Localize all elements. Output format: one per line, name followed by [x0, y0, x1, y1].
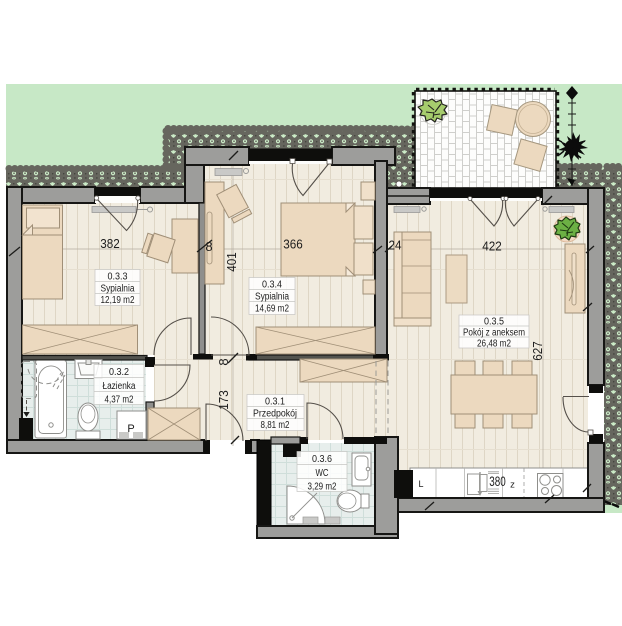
svg-text:Pokój z aneksem: Pokój z aneksem	[463, 328, 525, 339]
svg-text:173: 173	[216, 390, 231, 410]
svg-text:12,19 m2: 12,19 m2	[101, 295, 135, 306]
svg-text:Łazienka: Łazienka	[103, 381, 136, 392]
svg-text:Przedpokój: Przedpokój	[253, 409, 297, 420]
svg-text:380: 380	[489, 474, 506, 489]
svg-text:Sypialnia: Sypialnia	[101, 284, 135, 295]
svg-text:0.3.5: 0.3.5	[484, 317, 504, 328]
svg-text:8,81 m2: 8,81 m2	[261, 420, 290, 431]
svg-text:WC: WC	[316, 468, 329, 479]
svg-text:0.3.1: 0.3.1	[265, 397, 285, 408]
svg-text:Sypialnia: Sypialnia	[255, 292, 289, 303]
svg-text:24: 24	[389, 238, 402, 253]
svg-text:14,69 m2: 14,69 m2	[255, 304, 289, 315]
svg-text:366: 366	[283, 237, 303, 252]
svg-text:3,29 m2: 3,29 m2	[308, 482, 337, 493]
svg-text:0.3.3: 0.3.3	[108, 272, 128, 283]
svg-text:401: 401	[224, 252, 239, 272]
svg-text:0.3.4: 0.3.4	[262, 280, 282, 291]
svg-text:422: 422	[482, 239, 502, 254]
svg-text:8: 8	[205, 239, 212, 254]
svg-text:z: z	[510, 480, 515, 491]
svg-text:26,48 m2: 26,48 m2	[477, 339, 511, 350]
svg-text:0.3.6: 0.3.6	[312, 454, 332, 465]
svg-text:4,37 m2: 4,37 m2	[105, 395, 134, 406]
svg-text:382: 382	[100, 236, 120, 251]
svg-text:627: 627	[530, 341, 545, 361]
svg-text:L: L	[418, 479, 423, 489]
svg-text:0.3.2: 0.3.2	[109, 367, 129, 378]
